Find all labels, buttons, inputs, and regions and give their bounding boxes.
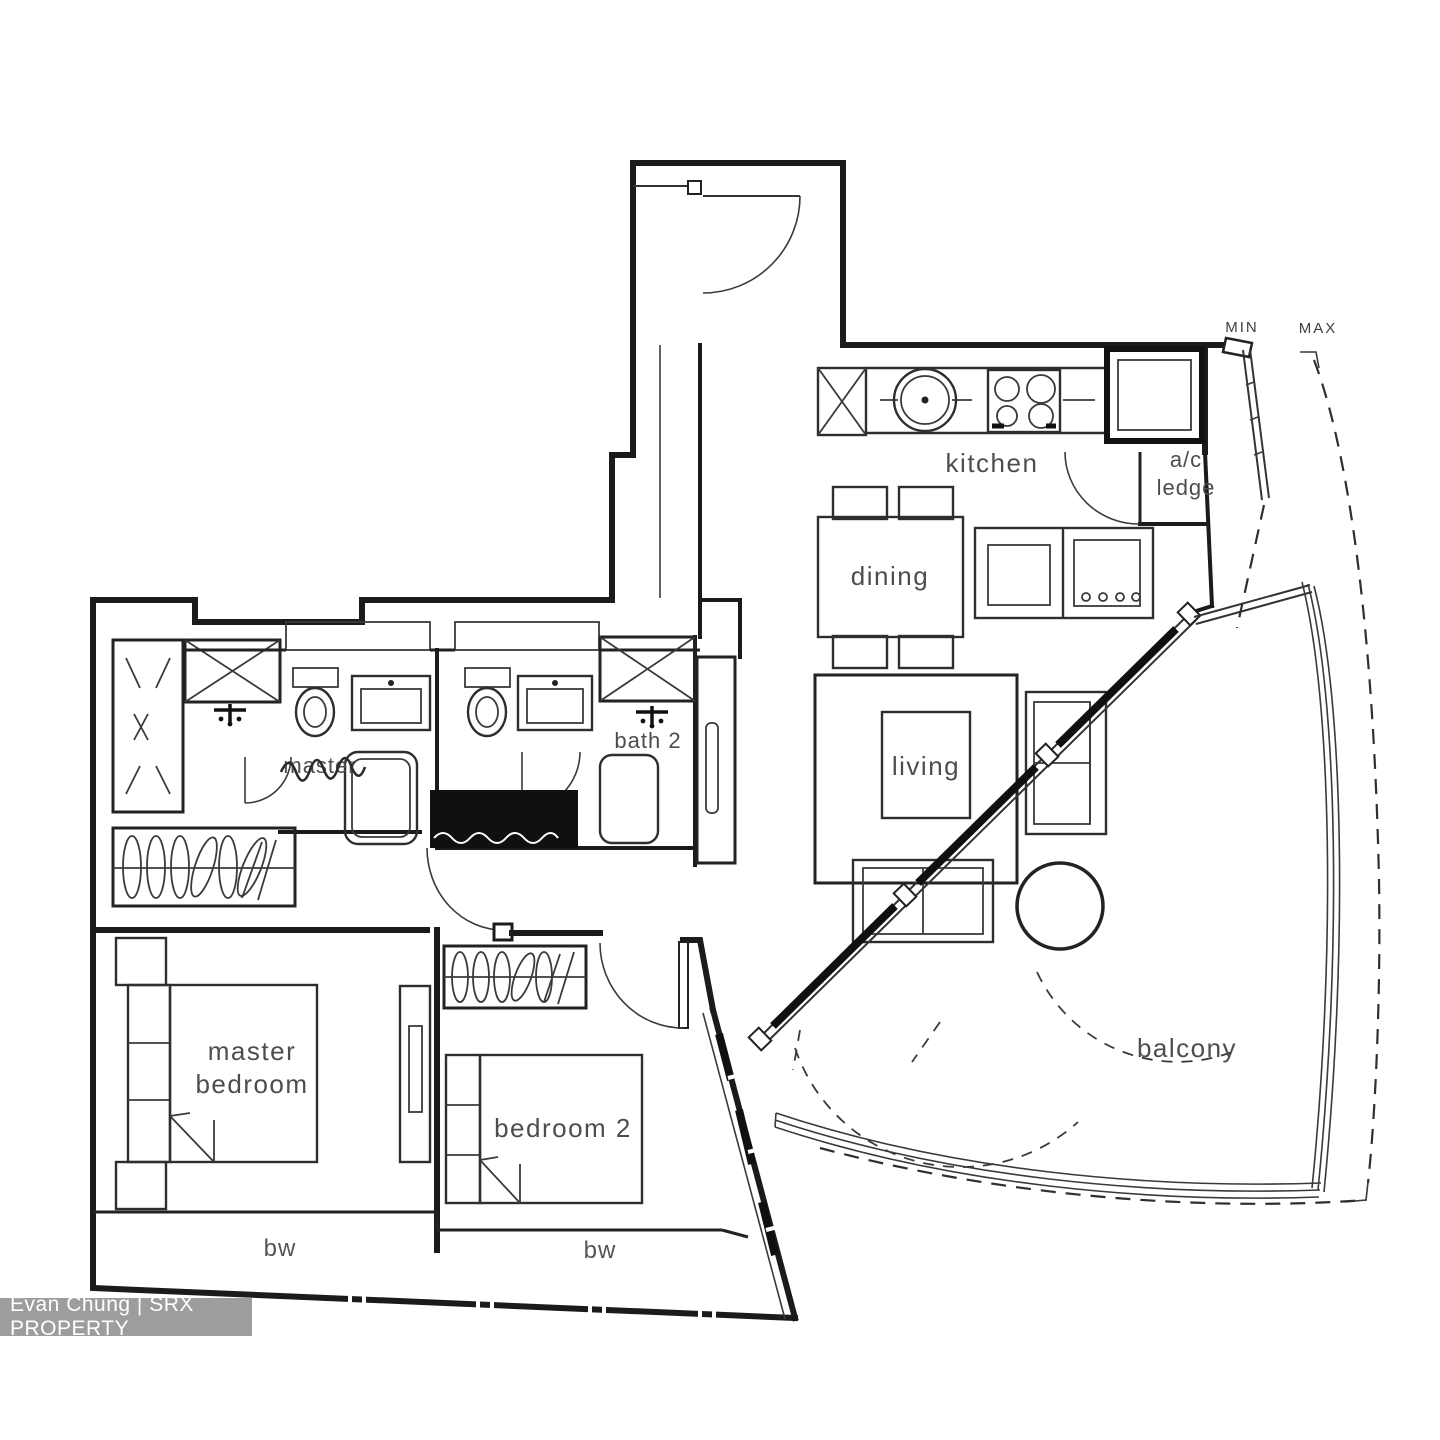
dining: dining xyxy=(818,487,963,668)
bath-2: bath 2 xyxy=(430,637,695,848)
dining-chair xyxy=(899,636,953,668)
wall-endcap xyxy=(1223,338,1252,357)
bw-left-label: bw xyxy=(264,1235,297,1262)
min-label: MIN xyxy=(1225,319,1259,336)
bathtub xyxy=(600,755,658,843)
watermark: Evan Chung | SRX PROPERTY xyxy=(0,1298,252,1336)
headboard xyxy=(128,985,170,1162)
dining-chair xyxy=(833,636,887,668)
bedroom2-door-leaf xyxy=(679,942,688,1028)
living: living xyxy=(815,675,1106,949)
fridge xyxy=(1107,349,1202,441)
kitchen-door-arc xyxy=(1065,452,1139,524)
bedroom2-door-arc xyxy=(600,943,683,1028)
master-wardrobe xyxy=(113,828,295,906)
watermark-text: Evan Chung | SRX PROPERTY xyxy=(10,1293,252,1341)
door-swing-arc xyxy=(795,1048,1078,1167)
max-dashed-line xyxy=(1314,360,1379,1183)
round-table xyxy=(1017,863,1103,949)
kitchen: kitchen xyxy=(818,349,1202,524)
min-max-lines: MIN MAX xyxy=(1225,319,1379,1202)
bedroom2-label: bedroom 2 xyxy=(494,1113,632,1143)
nightstand xyxy=(116,1162,166,1209)
kitchen-label: kitchen xyxy=(946,448,1039,478)
dining-label: dining xyxy=(851,561,929,591)
bedroom-2: bedroom 2 xyxy=(444,946,642,1203)
hall-cabinet xyxy=(697,657,735,863)
headboard xyxy=(446,1055,480,1203)
floorplan-svg: kitchen a/c ledge MIN MAX dining xyxy=(0,0,1440,1440)
floorplan-page: kitchen a/c ledge MIN MAX dining xyxy=(0,0,1440,1440)
blanket-fold xyxy=(170,1113,214,1162)
bath-strip: master bath 2 xyxy=(113,622,735,930)
window-post xyxy=(749,1028,772,1051)
ac-ledge-label-1: a/c xyxy=(1170,447,1202,472)
door-jamb xyxy=(688,181,701,194)
ac-window-wall xyxy=(1243,349,1269,500)
toilet xyxy=(293,668,338,687)
entry-door-arc xyxy=(703,196,800,293)
bw-right-label: bw xyxy=(584,1237,617,1264)
master-bedroom-label-1: master xyxy=(208,1036,296,1066)
nightstand xyxy=(116,938,166,985)
toilet xyxy=(465,668,510,687)
balcony-label: balcony xyxy=(1137,1033,1237,1063)
master-bath-label: master xyxy=(283,753,356,778)
max-label: MAX xyxy=(1299,320,1338,337)
kitchen-cabinets xyxy=(975,528,1153,618)
wardrobe-cabinet xyxy=(113,640,183,812)
entry-door xyxy=(633,181,800,293)
tv-console xyxy=(400,986,430,1162)
master-bedroom-label-2: bedroom xyxy=(195,1069,308,1099)
ac-ledge-label-2: ledge xyxy=(1157,475,1216,500)
living-label: living xyxy=(892,751,960,781)
blanket-fold xyxy=(480,1157,520,1203)
dining-chair xyxy=(833,487,887,519)
master-bedroom: master bedroom xyxy=(116,938,430,1209)
bath2-label: bath 2 xyxy=(614,728,681,753)
hall-door-arc xyxy=(427,848,503,930)
dining-chair xyxy=(899,487,953,519)
tv xyxy=(409,1026,422,1112)
master-bath: master xyxy=(245,668,430,844)
hanger-coil xyxy=(123,836,141,898)
